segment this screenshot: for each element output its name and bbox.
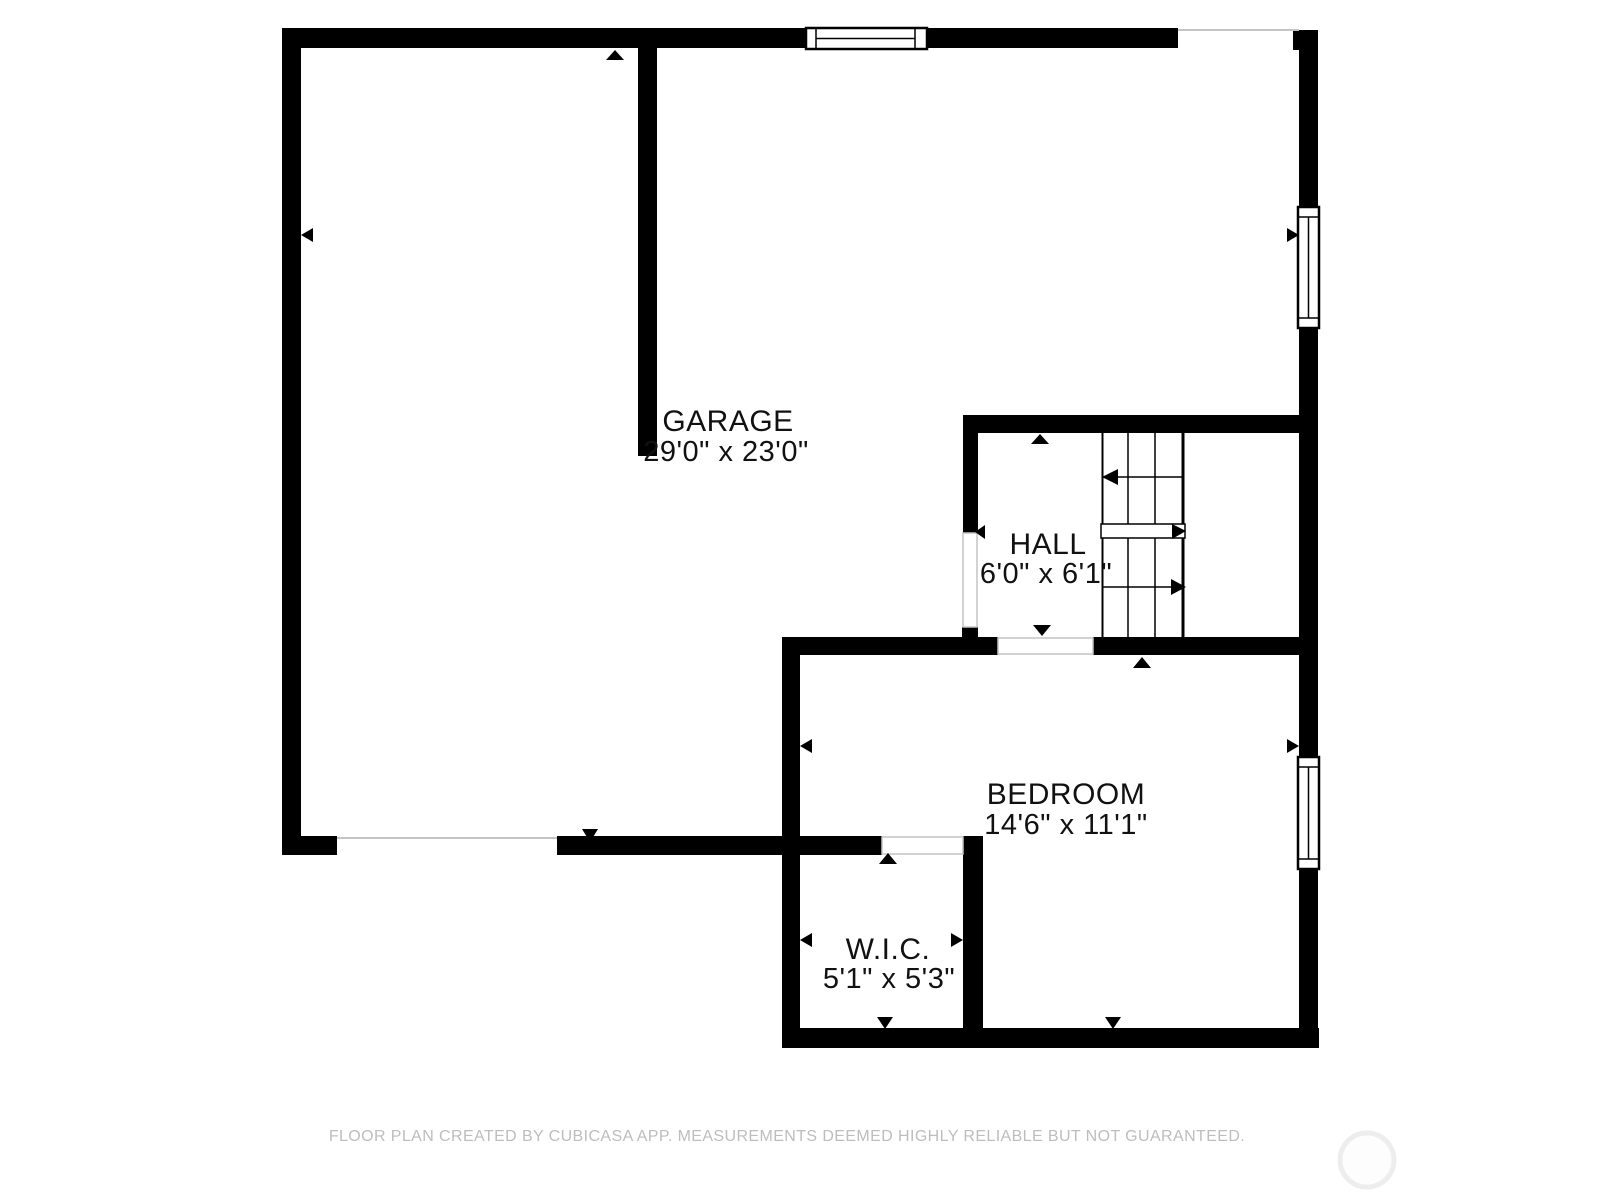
marker-garage-top-icon [606,50,624,60]
garage-window [806,28,927,49]
staircase [1101,433,1186,637]
upper-right-window [1298,207,1319,328]
wall-bedroom-top-right [1093,637,1299,655]
wic-dimensions: 5'1" x 5'3" [823,963,955,995]
marker-hall-bedroom-door-icon [1033,625,1051,636]
hall-bedroom-doorway [998,638,1093,654]
hall-label: HALL [1009,528,1086,561]
wic-doorway [882,837,963,854]
wall-left [282,28,301,855]
windows [806,28,1319,869]
stair-arrow-left-icon [1102,469,1118,485]
marker-bedroom-right-icon [1287,739,1299,753]
marker-garage-left-icon [301,228,313,242]
floor-plan-page: GARAGE 29'0" x 23'0" HALL 6'0" x 6'1" BE… [0,0,1600,1200]
footer-disclaimer: FLOOR PLAN CREATED BY CUBICASA APP. MEAS… [329,1128,1245,1145]
wall-top [282,28,1178,48]
wall-right-top-notch [1293,30,1299,50]
wall-wic-right [963,836,983,1028]
bedroom-window [1298,757,1319,869]
wall-hall-left-upper [963,415,978,533]
wall-bedroom-left [782,637,800,1048]
wall-right [1299,30,1318,1048]
wall-wic-top [800,836,882,855]
marker-bedroom-bottom-icon [1105,1017,1121,1029]
wall-garage-bottom [557,836,800,855]
marker-wic-right-icon [951,933,963,947]
wall-hall-top [963,415,1299,433]
marker-wic-left-icon [800,933,812,947]
watermark-circle [1340,1133,1394,1187]
floor-plan-canvas: GARAGE 29'0" x 23'0" HALL 6'0" x 6'1" BE… [0,0,1600,1200]
wall-garage-divider [638,48,657,456]
room-labels: GARAGE 29'0" x 23'0" HALL 6'0" x 6'1" BE… [643,405,1147,995]
wall-bottom-left-stub [282,836,337,855]
hall-dimensions: 6'0" x 6'1" [980,558,1112,590]
bedroom-label: BEDROOM [987,778,1146,811]
marker-wic-bottom-icon [877,1017,893,1029]
garage-dimensions: 29'0" x 23'0" [643,436,809,468]
garage-label: GARAGE [662,405,793,438]
hall-left-doorway [963,533,977,627]
wall-hall-left-stub [962,627,978,655]
marker-stairs-entry-icon [1133,657,1151,668]
bedroom-dimensions: 14'6" x 11'1" [984,809,1147,841]
marker-bedroom-left-icon [800,739,812,753]
marker-hall-top-icon [1031,434,1049,444]
wall-bottom [782,1028,1319,1048]
wic-label: W.I.C. [846,933,931,966]
